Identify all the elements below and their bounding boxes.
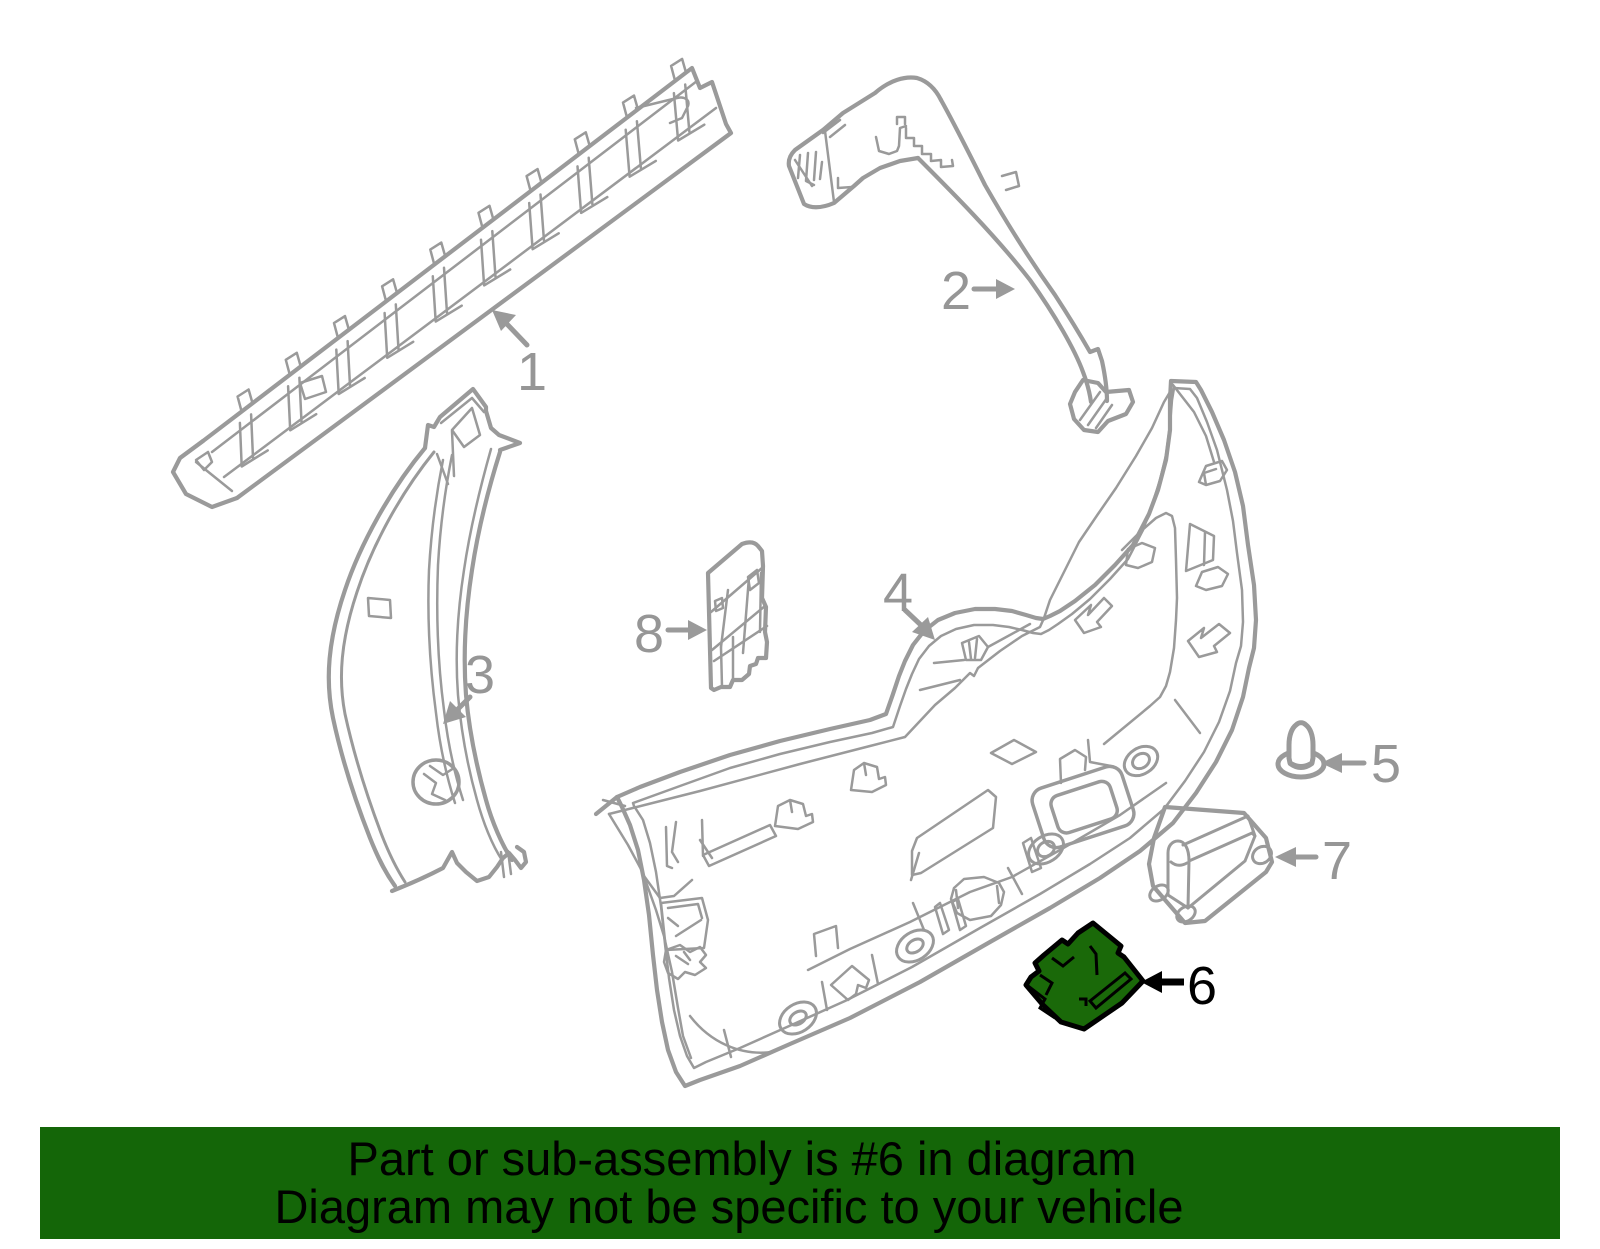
svg-text:8: 8 (634, 604, 664, 664)
svg-text:4: 4 (883, 563, 913, 623)
svg-text:2: 2 (941, 261, 971, 321)
svg-text:Part or sub-assembly is #6 in: Part or sub-assembly is #6 in diagram (348, 1132, 1137, 1185)
svg-text:6: 6 (1187, 956, 1217, 1016)
svg-text:Diagram may not be specific to: Diagram may not be specific to your vehi… (274, 1180, 1183, 1233)
svg-text:1: 1 (517, 342, 547, 402)
svg-text:7: 7 (1322, 831, 1352, 891)
svg-text:5: 5 (1371, 734, 1401, 794)
svg-text:3: 3 (465, 645, 495, 705)
